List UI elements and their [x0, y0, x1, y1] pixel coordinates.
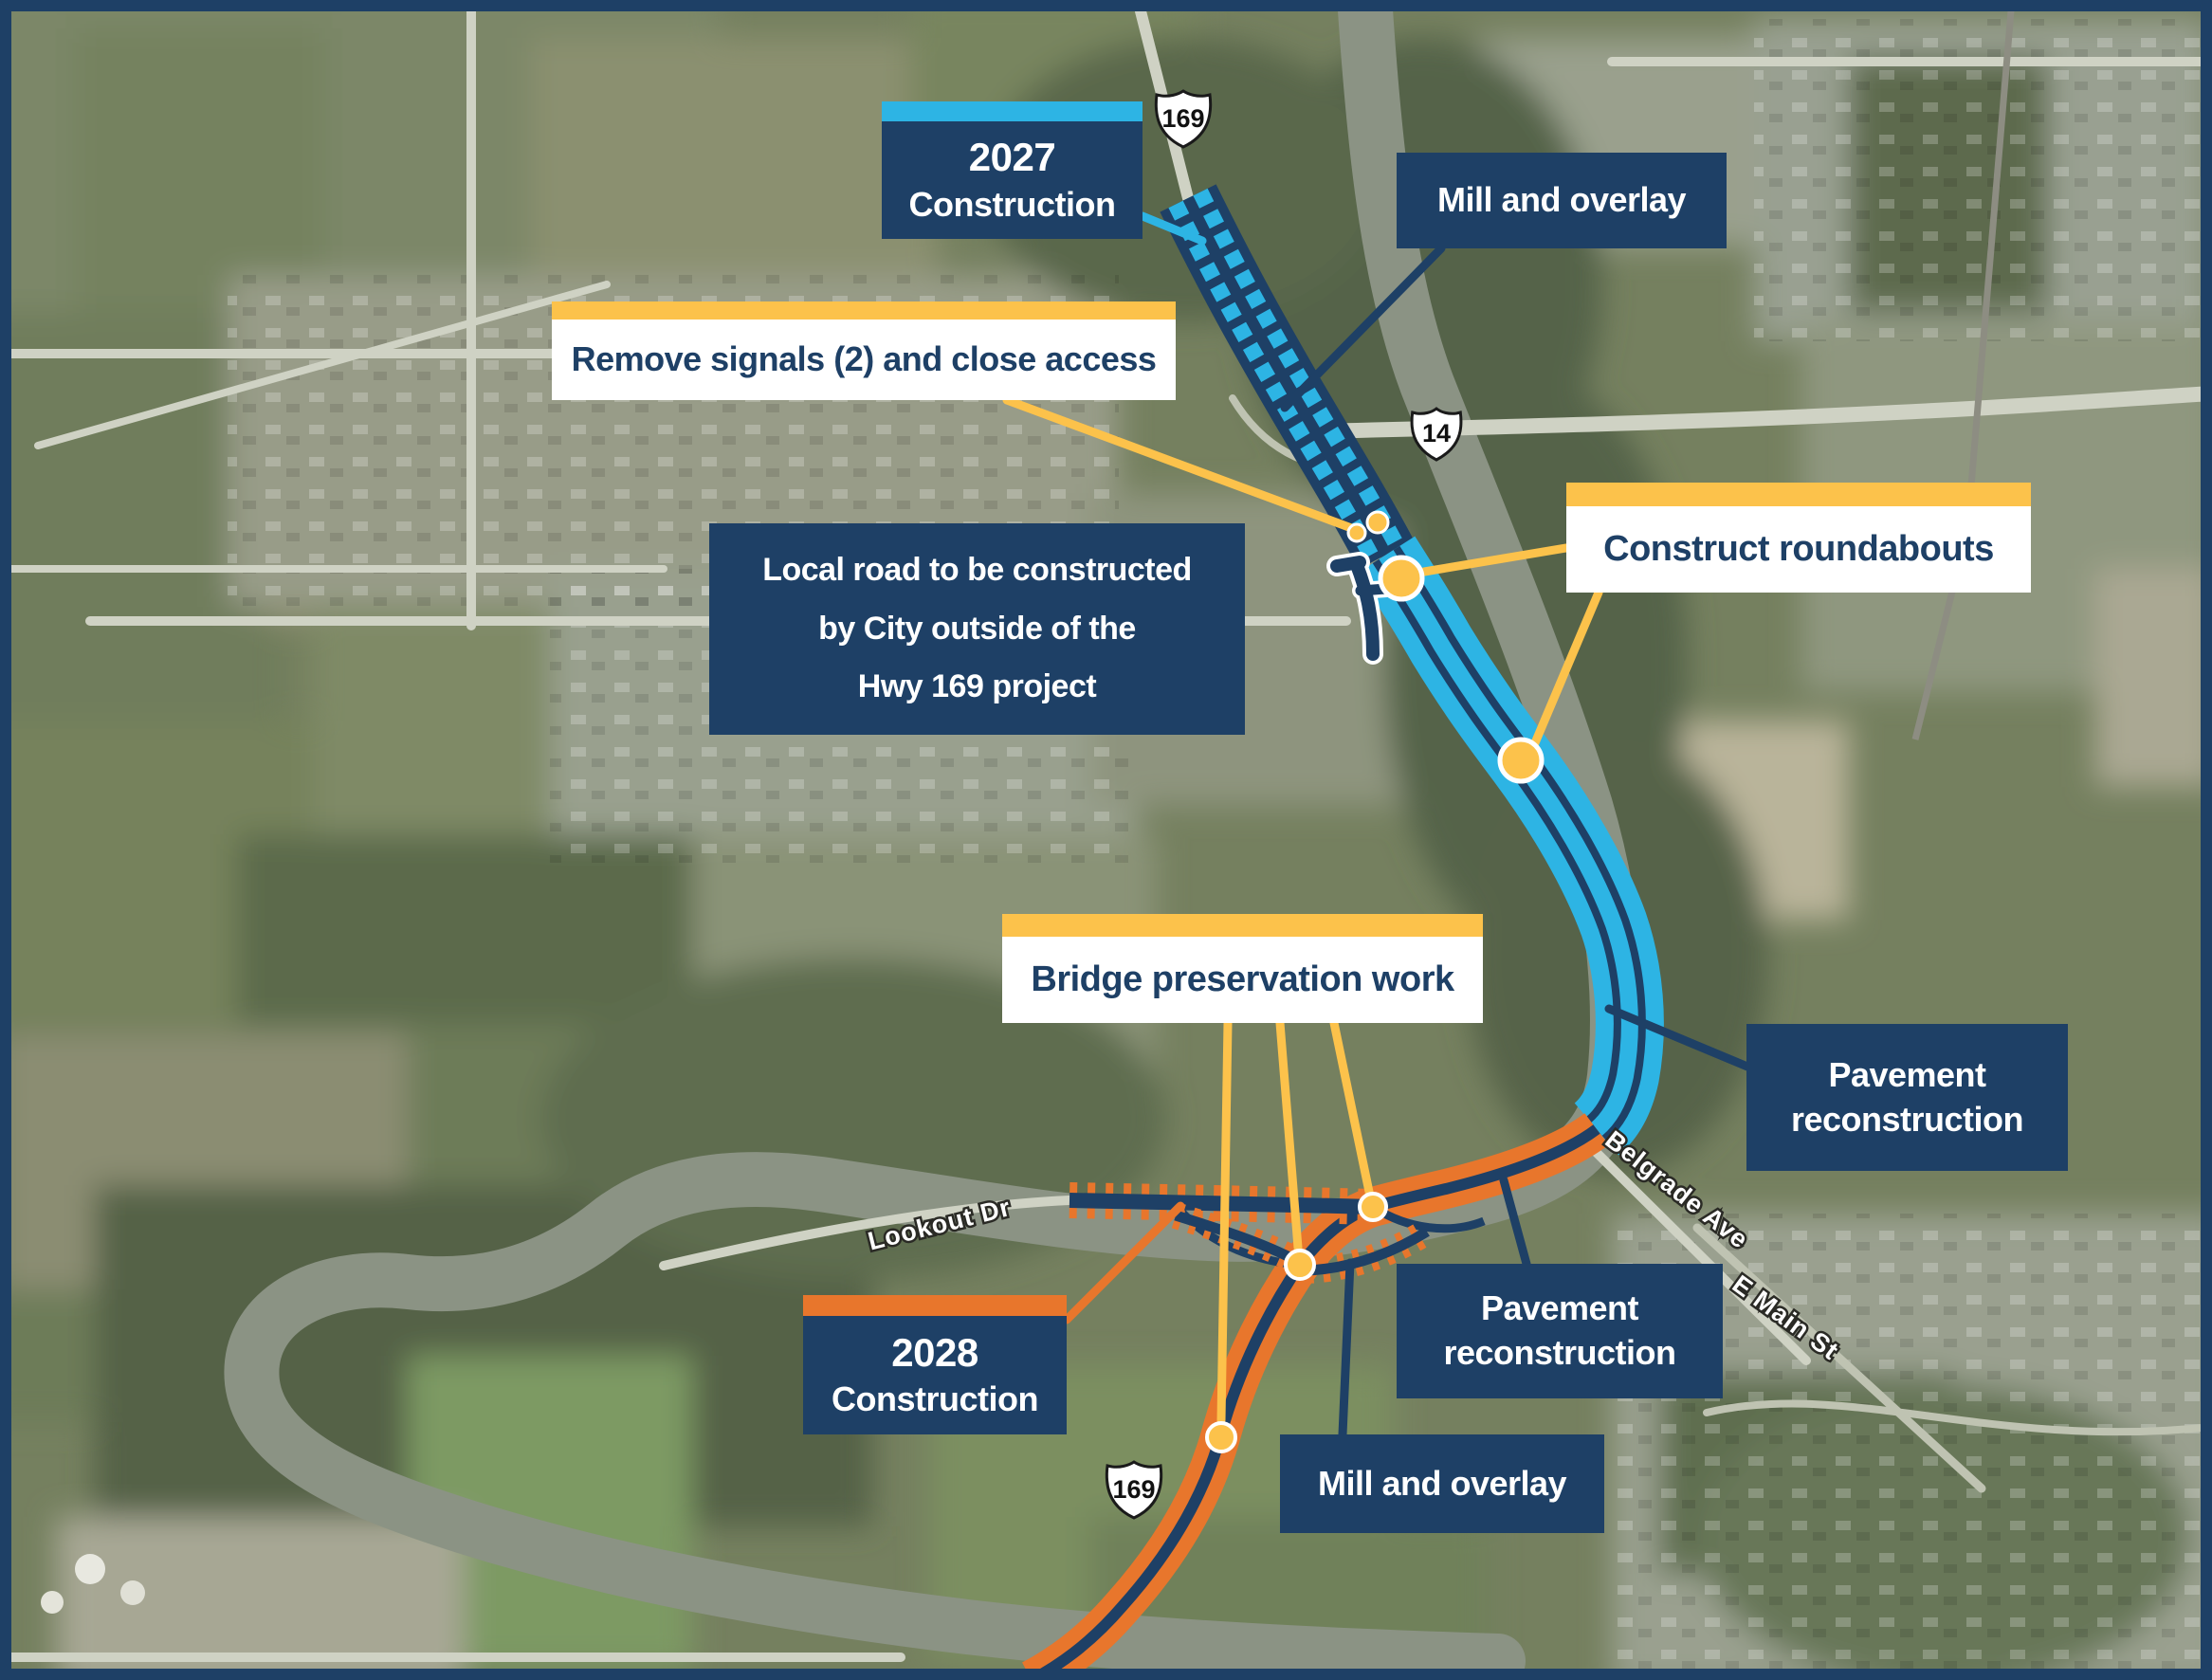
label-construct-roundabouts: Construct roundabouts — [1566, 506, 2031, 593]
color-bar-2028 — [803, 1295, 1067, 1316]
color-bar-bridge — [1002, 914, 1483, 937]
label-mill-overlay-top: Mill and overlay — [1397, 153, 1727, 248]
color-bar-roundabouts — [1566, 483, 2031, 506]
label-2027-year: 2027 — [969, 133, 1055, 183]
signal-marker-1 — [1348, 524, 1365, 541]
label-local-road: Local road to be constructed by City out… — [709, 523, 1245, 735]
label-bridge-preservation: Bridge preservation work — [1002, 937, 1483, 1023]
color-bar-remove-signals — [552, 301, 1176, 320]
bridge-marker-2 — [1286, 1251, 1314, 1279]
construction-project-map: Lookout Dr Belgrade Ave E Main St 169 14… — [0, 0, 2212, 1680]
svg-text:14: 14 — [1422, 419, 1451, 447]
local-road-line3: Hwy 169 project — [858, 658, 1096, 717]
signal-marker-2 — [1367, 512, 1388, 533]
bridge-marker-3 — [1207, 1423, 1235, 1452]
svg-text:169: 169 — [1161, 104, 1204, 133]
color-bar-2027 — [882, 101, 1143, 121]
roundabout-marker-south — [1500, 740, 1542, 781]
local-road-line2: by City outside of the — [818, 600, 1136, 659]
label-remove-signals: Remove signals (2) and close access — [552, 320, 1176, 400]
roundabout-marker-north — [1380, 557, 1422, 599]
local-road-line1: Local road to be constructed — [762, 541, 1192, 600]
map-canvas: Lookout Dr Belgrade Ave E Main St 169 14… — [0, 0, 2212, 1680]
svg-text:169: 169 — [1112, 1475, 1155, 1504]
label-2028-word: Construction — [832, 1378, 1038, 1422]
label-2027-construction: 2027 Construction — [882, 121, 1143, 239]
bridge-marker-1 — [1360, 1194, 1386, 1220]
label-2028-construction: 2028 Construction — [803, 1316, 1067, 1434]
label-2027-word: Construction — [909, 183, 1116, 228]
label-pavement-reconstruction-bottom: Pavement reconstruction — [1397, 1264, 1723, 1398]
label-pavement-reconstruction-right: Pavement reconstruction — [1746, 1024, 2068, 1171]
label-2028-year: 2028 — [891, 1328, 978, 1379]
label-mill-overlay-bottom: Mill and overlay — [1280, 1434, 1604, 1533]
